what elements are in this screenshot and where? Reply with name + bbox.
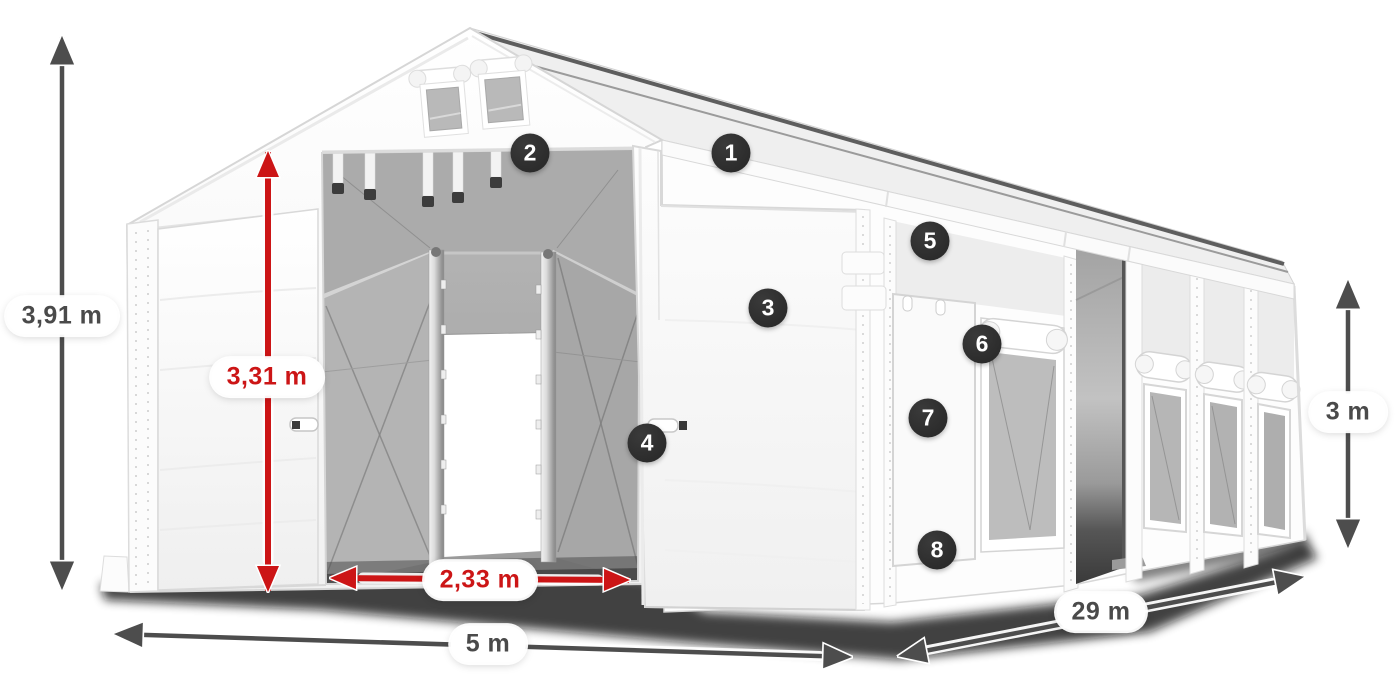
dim-label-total-height: 3,91 m bbox=[7, 298, 118, 335]
dim-label-front-width: 5 m bbox=[451, 626, 526, 663]
entrance-interior bbox=[320, 146, 645, 587]
feature-badge-3: 3 bbox=[749, 289, 788, 328]
right-sliding-door bbox=[633, 146, 886, 610]
dim-label-entrance-height: 3,31 m bbox=[212, 359, 323, 396]
corner-trim bbox=[127, 220, 158, 592]
feature-badge-4: 4 bbox=[628, 424, 667, 463]
dim-label-wall-height: 3 m bbox=[1311, 394, 1386, 431]
feature-badge-2: 2 bbox=[511, 134, 550, 173]
side-window-mesh bbox=[989, 352, 1056, 540]
interior-pole-left bbox=[429, 247, 446, 567]
tent-illustration bbox=[0, 0, 1400, 700]
feature-badge-8: 8 bbox=[918, 531, 957, 570]
tent-diagram-stage: 3,91 m 3,31 m 2,33 m 5 m 29 m 3 m 1 2 3 … bbox=[0, 0, 1400, 700]
feature-badge-6: 6 bbox=[963, 325, 1002, 364]
dim-label-side-length: 29 m bbox=[1057, 594, 1146, 631]
feature-badge-1: 1 bbox=[712, 134, 751, 173]
interior-left-wall bbox=[320, 252, 433, 585]
far-opening bbox=[444, 333, 543, 557]
left-sliding-door bbox=[100, 209, 318, 592]
dim-label-entrance-width: 2,33 m bbox=[425, 562, 536, 599]
left-door-handle bbox=[290, 418, 318, 431]
feature-badge-7: 7 bbox=[909, 399, 948, 438]
feature-badge-5: 5 bbox=[911, 222, 950, 261]
